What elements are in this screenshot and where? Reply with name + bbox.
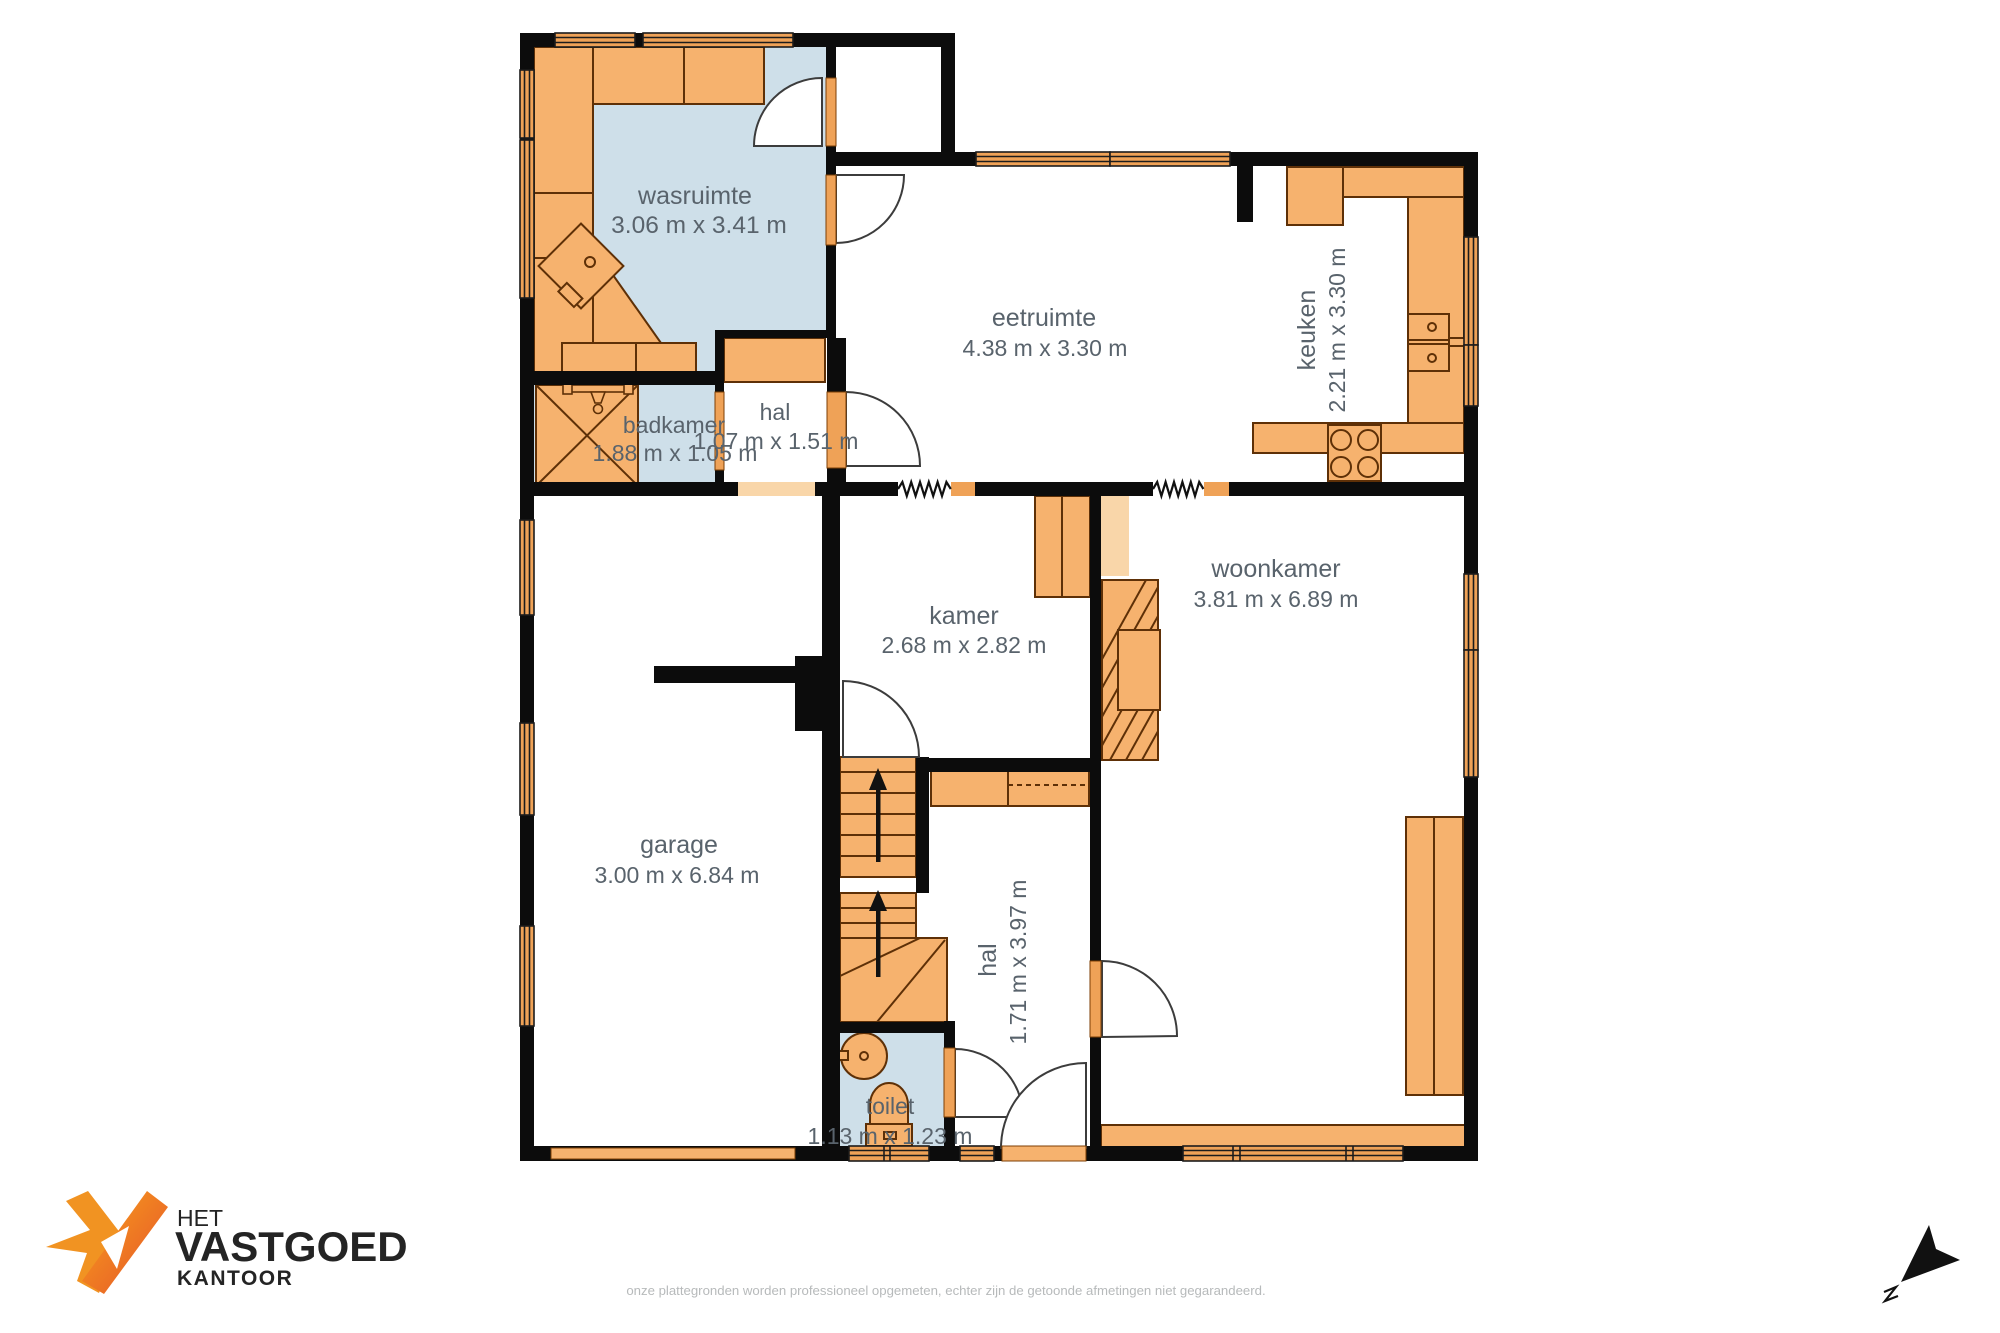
svg-text:2.68 m x 2.82 m: 2.68 m x 2.82 m (882, 632, 1047, 658)
svg-text:VASTGOED: VASTGOED (175, 1223, 408, 1270)
svg-text:1.13 m x 1.23 m: 1.13 m x 1.23 m (808, 1123, 973, 1149)
svg-text:eetruimte: eetruimte (992, 304, 1096, 332)
svg-text:1.07 m x 1.51 m: 1.07 m x 1.51 m (694, 428, 859, 454)
svg-text:kamer: kamer (929, 602, 998, 630)
svg-text:KANTOOR: KANTOOR (177, 1267, 293, 1290)
svg-text:3.81 m x 6.89 m: 3.81 m x 6.89 m (1194, 586, 1359, 612)
svg-text:garage: garage (640, 831, 718, 859)
svg-text:3.06 m x 3.41 m: 3.06 m x 3.41 m (611, 212, 787, 239)
svg-text:2.21 m x 3.30 m: 2.21 m x 3.30 m (1324, 248, 1350, 413)
svg-text:onze plattegronden worden prof: onze plattegronden worden professioneel … (626, 1283, 1265, 1298)
svg-text:toilet: toilet (866, 1093, 915, 1119)
svg-text:1.71 m x 3.97 m: 1.71 m x 3.97 m (1005, 880, 1031, 1045)
svg-text:woonkamer: woonkamer (1210, 555, 1340, 583)
svg-text:wasruimte: wasruimte (637, 182, 752, 210)
svg-text:4.38 m x 3.30 m: 4.38 m x 3.30 m (963, 335, 1128, 361)
svg-text:keuken: keuken (1293, 290, 1321, 371)
svg-text:hal: hal (760, 399, 791, 425)
svg-text:3.00 m x 6.84 m: 3.00 m x 6.84 m (595, 862, 760, 888)
svg-text:hal: hal (974, 943, 1002, 976)
